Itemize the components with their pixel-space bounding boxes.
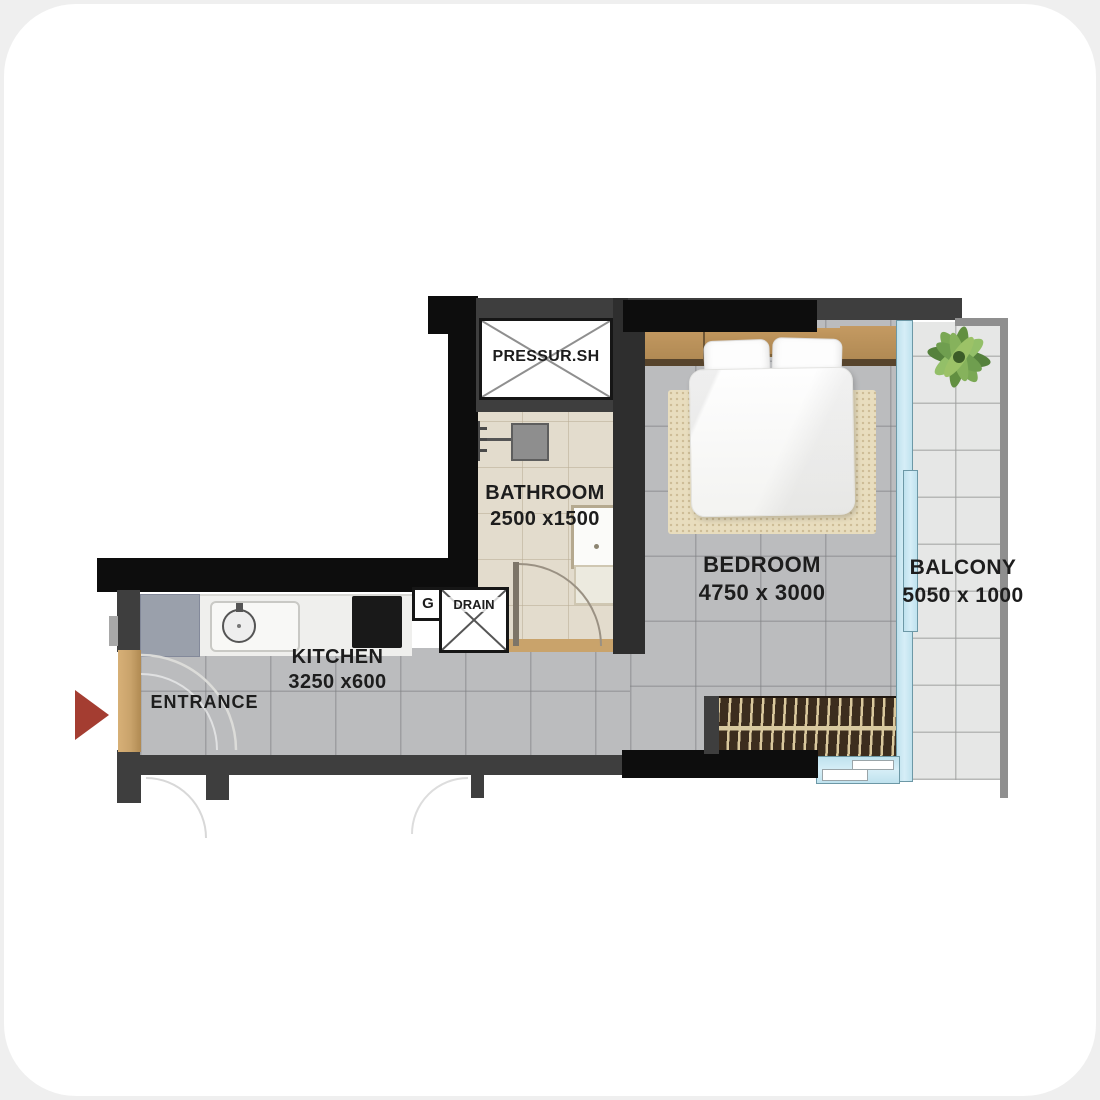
wall [117, 590, 140, 652]
wall-stub [206, 775, 229, 800]
drain-label: DRAIN [442, 597, 506, 612]
wall [97, 558, 459, 592]
pressure-shaft-box: PRESSUR.SH [479, 318, 613, 400]
balcony-label: BALCONY [878, 556, 1048, 580]
bathroom-counter [574, 565, 618, 605]
glass-door-handle [822, 769, 868, 781]
nightstand-right [840, 326, 899, 366]
bedroom-label: BEDROOM [662, 552, 862, 578]
bathroom-door-threshold [507, 639, 613, 652]
kitchen-dims: 3250 x600 [250, 671, 425, 694]
plant-icon [920, 320, 998, 394]
nightstand-left [643, 326, 705, 366]
wall [117, 755, 625, 775]
floor-plan: PRESSUR.SH G DRAIN BATHROOM 2500 x1500 B… [0, 0, 1100, 1100]
bedroom-dims: 4750 x 3000 [662, 580, 862, 606]
bed-duvet [689, 367, 856, 518]
stove-icon [352, 596, 402, 648]
glass-door-handle [852, 760, 894, 770]
pressure-shaft-label: PRESSUR.SH [482, 348, 610, 366]
wall [448, 296, 478, 596]
shower-icon [511, 423, 549, 461]
wall [622, 750, 818, 778]
balcony-dims: 5050 x 1000 [878, 584, 1048, 608]
faucet-icon [222, 609, 256, 643]
gas-meter-label: G [415, 595, 441, 612]
entrance-door [118, 650, 141, 752]
bathroom-label: BATHROOM [455, 482, 635, 505]
wall [613, 298, 645, 654]
wall [623, 300, 817, 332]
drain-box: DRAIN [439, 587, 509, 653]
entrance-arrow-icon [75, 690, 109, 740]
wall-stub [704, 696, 719, 754]
wall-stub [117, 775, 141, 803]
bathroom-dims: 2500 x1500 [455, 508, 635, 531]
wall-stub [471, 775, 484, 798]
fridge-icon [140, 594, 200, 657]
door-hinge [109, 616, 118, 646]
bedroom-bench [716, 696, 902, 758]
entrance-label: ENTRANCE [142, 692, 267, 713]
kitchen-label: KITCHEN [250, 646, 425, 669]
